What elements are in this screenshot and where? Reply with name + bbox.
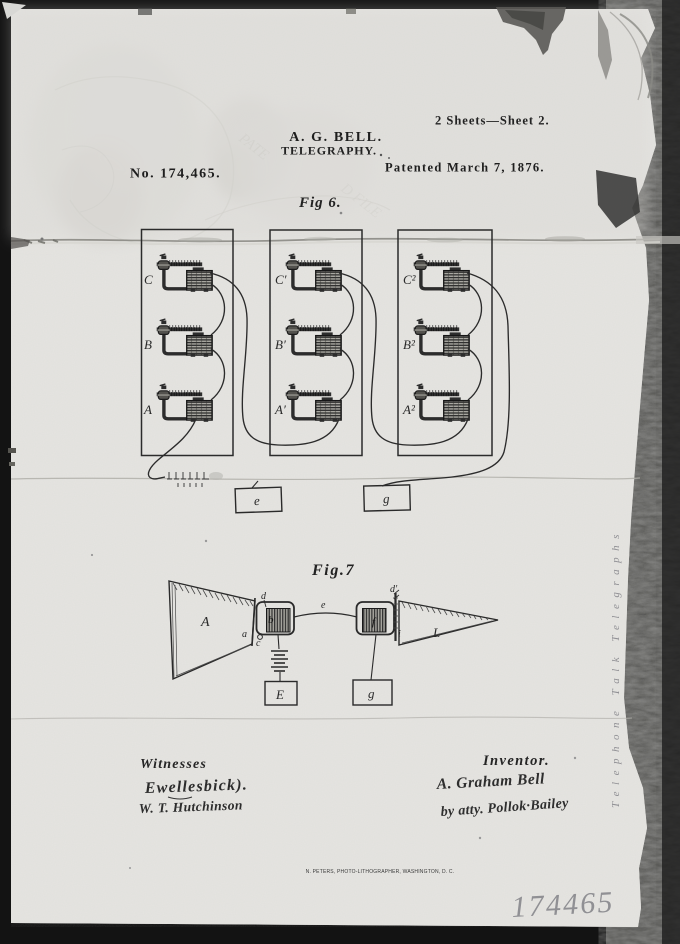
svg-text:Fig.7: Fig.7 bbox=[311, 562, 355, 579]
svg-text:e: e bbox=[254, 493, 261, 508]
svg-text:A: A bbox=[143, 402, 152, 417]
svg-text:A²: A² bbox=[402, 402, 416, 417]
svg-text:c: c bbox=[256, 638, 261, 649]
svg-text:A′: A′ bbox=[274, 402, 286, 417]
svg-text:Patented March 7, 1876.: Patented March 7, 1876. bbox=[385, 161, 545, 175]
svg-text:e: e bbox=[321, 600, 326, 611]
svg-text:Witnesses: Witnesses bbox=[140, 757, 207, 772]
svg-text:174465: 174465 bbox=[511, 886, 616, 924]
svg-text:C′: C′ bbox=[275, 272, 287, 287]
svg-text:L: L bbox=[432, 625, 440, 640]
svg-text:Fig 6.: Fig 6. bbox=[298, 195, 342, 211]
svg-text:C²: C² bbox=[403, 272, 417, 287]
svg-text:Inventor.: Inventor. bbox=[482, 753, 550, 769]
svg-text:g: g bbox=[383, 491, 390, 506]
svg-text:C: C bbox=[144, 272, 153, 287]
svg-text:Ewellesbick).: Ewellesbick). bbox=[144, 776, 249, 797]
svg-text:d′: d′ bbox=[390, 584, 398, 595]
svg-text:No. 174,465.: No. 174,465. bbox=[130, 167, 221, 182]
svg-text:B²: B² bbox=[403, 337, 416, 352]
svg-text:2 Sheets—Sheet 2.: 2 Sheets—Sheet 2. bbox=[435, 114, 550, 128]
svg-text:E: E bbox=[275, 687, 284, 702]
svg-text:B′: B′ bbox=[275, 337, 286, 352]
svg-text:Telephone Talk Telegraphs: Telephone Talk Telegraphs bbox=[610, 528, 622, 808]
svg-text:A: A bbox=[200, 615, 210, 630]
svg-text:B: B bbox=[144, 337, 152, 352]
svg-text:a: a bbox=[242, 629, 247, 640]
svg-text:b: b bbox=[268, 614, 274, 626]
svg-text:N. PETERS, PHOTO-LITHOGRAPHER,: N. PETERS, PHOTO-LITHOGRAPHER, WASHINGTO… bbox=[306, 869, 455, 875]
svg-text:g: g bbox=[368, 686, 375, 701]
svg-text:TELEGRAPHY.: TELEGRAPHY. bbox=[281, 144, 377, 158]
